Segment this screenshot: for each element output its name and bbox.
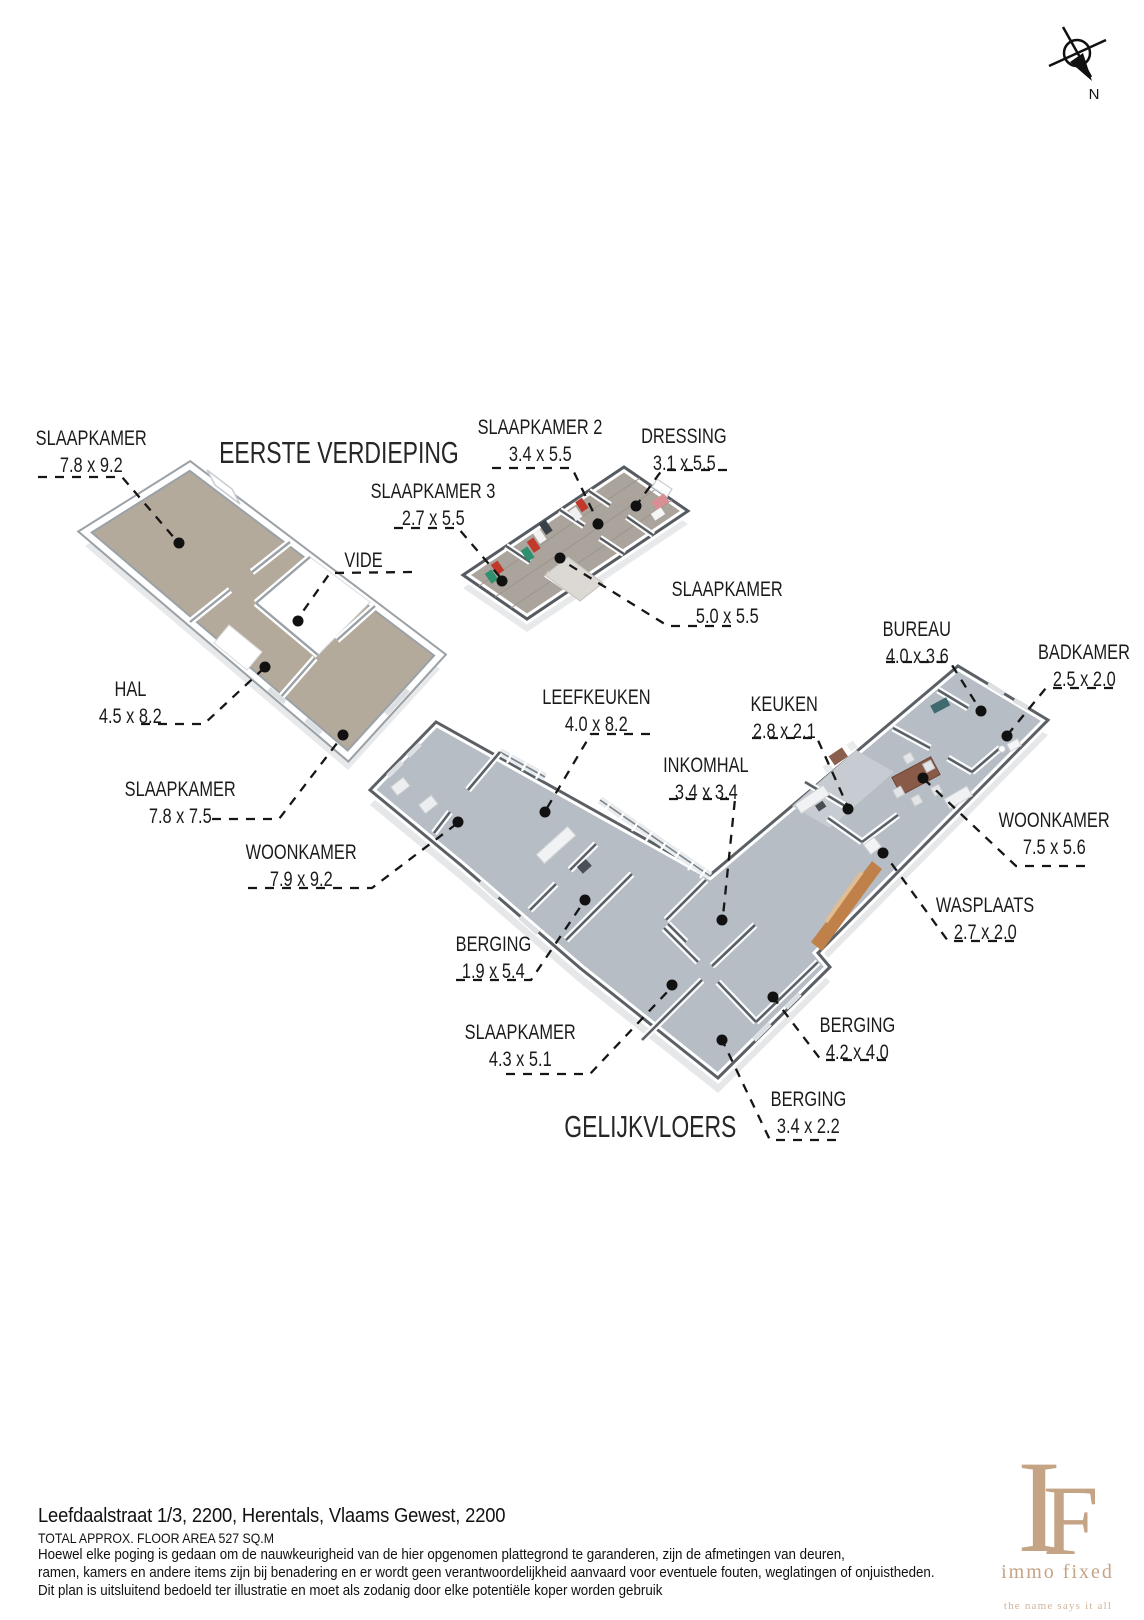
room-label-badkamer: BADKAMER2.5 x 2.0 (924, 639, 1144, 693)
room-label-wasplaats: WASPLAATS2.7 x 2.0 (825, 892, 1144, 946)
room-label-hal: HAL4.5 x 8.2 (0, 676, 290, 730)
disclaimer-line-3: Dit plan is uitsluitend bedoeld ter illu… (38, 1583, 717, 1599)
room-label-dressing: DRESSING3.1 x 5.5 (524, 423, 844, 477)
room-label-keuken: KEUKEN2.8 x 2.1 (624, 691, 944, 745)
address-line: Leefdaalstraat 1/3, 2200, Herentals, Vla… (38, 1505, 546, 1528)
floor-area-line: TOTAL APPROX. FLOOR AREA 527 SQ.M (38, 1530, 306, 1546)
room-label-berging-2: BERGING4.2 x 4.0 (697, 1012, 1017, 1066)
logo-letter-f: F (1043, 1465, 1099, 1576)
compass-north-label: N (1089, 86, 1100, 103)
disclaimer-line-1: Hoewel elke poging is gedaan om de nauwk… (38, 1547, 915, 1563)
disclaimer-line-2: ramen, kamers en andere items zijn bij b… (38, 1565, 1013, 1581)
room-label-berging-3: BERGING3.4 x 2.2 (648, 1086, 968, 1140)
room-label-woonkamer-2: WOONKAMER7.5 x 5.6 (894, 807, 1144, 861)
logo-monogram: I F (1017, 1433, 1099, 1580)
room-label-woonkamer-1: WOONKAMER7.9 x 9.2 (141, 839, 461, 893)
compass-icon: N (1049, 27, 1106, 103)
room-label-vide: VIDE (204, 547, 524, 601)
room-label-slaapkamer-3: SLAAPKAMER 32.7 x 5.5 (273, 478, 593, 532)
room-label-slaapkamer-1: SLAAPKAMER7.8 x 9.2 (0, 425, 251, 479)
room-label-inkomhal: INKOMHAL3.4 x 3.4 (546, 752, 866, 806)
floorplan-page: N I F EERSTE VERDIEPING GELIJKVLOERS SLA… (0, 0, 1144, 1620)
room-label-slaapkamer-6: SLAAPKAMER4.3 x 5.1 (360, 1019, 680, 1073)
logo-tagline: the name says it all (978, 1600, 1138, 1612)
room-label-slaapkamer-5: SLAAPKAMER7.8 x 7.5 (20, 776, 340, 830)
logo-name: immo fixed (993, 1561, 1122, 1584)
room-label-berging-1: BERGING1.9 x 5.4 (333, 931, 653, 985)
